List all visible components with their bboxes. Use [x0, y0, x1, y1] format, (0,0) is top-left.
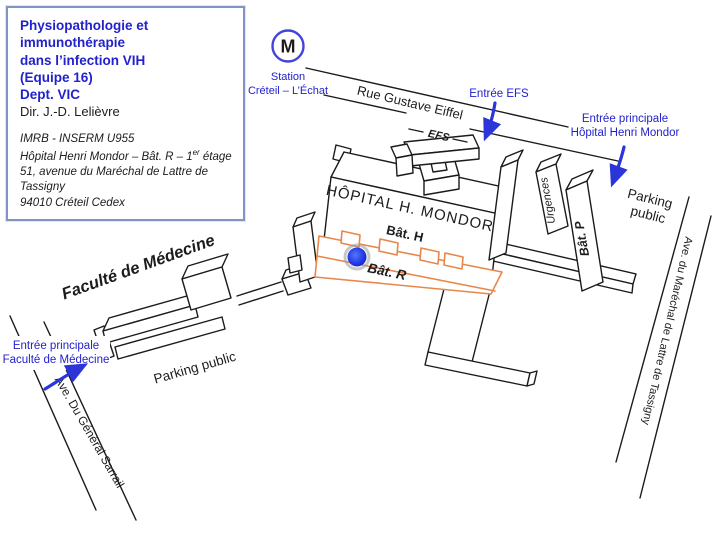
info-address-line-2: 51, avenue du Maréchal de Lattre de Tass… [20, 165, 232, 196]
location-dot [345, 245, 369, 269]
info-address-line-3: 94010 Créteil Cedex [20, 196, 232, 211]
entrance-hopital-label-1: Entrée principale [582, 113, 668, 125]
info-address-line-1-sup: er [193, 148, 200, 157]
info-org: IMRB - INSERM U955 [20, 132, 232, 147]
info-address-line-1-post: étage [200, 150, 232, 162]
street-label-lattre: Ave. du Maréchal de Lattre de Tassigny [639, 235, 694, 426]
street-label-sarrail: Ave. Du Général Sarrail [52, 374, 127, 491]
info-title-line-1: Physiopathologie et immunothérapie [20, 17, 232, 52]
info-title-line-3: (Equipe 16) [20, 69, 232, 86]
info-box: Physiopathologie et immunothérapie dans … [6, 6, 245, 221]
entrance-faculte-label-1: Entrée principale [13, 340, 99, 352]
entrance-efs-label: Entrée EFS [469, 88, 529, 100]
west-block-building [288, 212, 318, 282]
info-title-line-2: dans l’infection VIH [20, 52, 232, 69]
metro-station: M Station Créteil – L’Échat [248, 31, 328, 98]
map-page: Rue Gustave Eiffel Ave. Du Général Sarra… [0, 0, 720, 540]
info-address-line-1: Hôpital Henri Mondor – Bât. R – 1er étag… [20, 148, 232, 165]
walkway-east [493, 242, 636, 293]
entrance-faculte-annotation: Entrée principale Faculté de Médecine [3, 336, 110, 389]
street-label-eiffel: Rue Gustave Eiffel [356, 83, 465, 123]
metro-m-letter: M [281, 37, 296, 57]
info-title-line-4: Dept. VIC [20, 86, 232, 103]
entrance-faculte-label-2: Faculté de Médecine [3, 354, 110, 366]
info-address-line-1-pre: Hôpital Henri Mondor – Bât. R – 1 [20, 150, 193, 162]
efs-label-dash-left [409, 129, 423, 132]
entrance-hopital-annotation: Entrée principale Hôpital Henri Mondor [571, 113, 680, 182]
info-director: Dir. J.-D. Lelièvre [20, 104, 232, 121]
parking-left-label: Parking public [152, 349, 238, 387]
entrance-efs-arrow [486, 103, 495, 136]
metro-station-label-1: Station [271, 71, 305, 83]
entrance-hopital-label-2: Hôpital Henri Mondor [571, 127, 680, 139]
entrance-hopital-arrow [613, 147, 624, 182]
metro-station-label-2: Créteil – L’Échat [248, 84, 328, 97]
info-address-block: IMRB - INSERM U955 Hôpital Henri Mondor … [20, 132, 232, 211]
